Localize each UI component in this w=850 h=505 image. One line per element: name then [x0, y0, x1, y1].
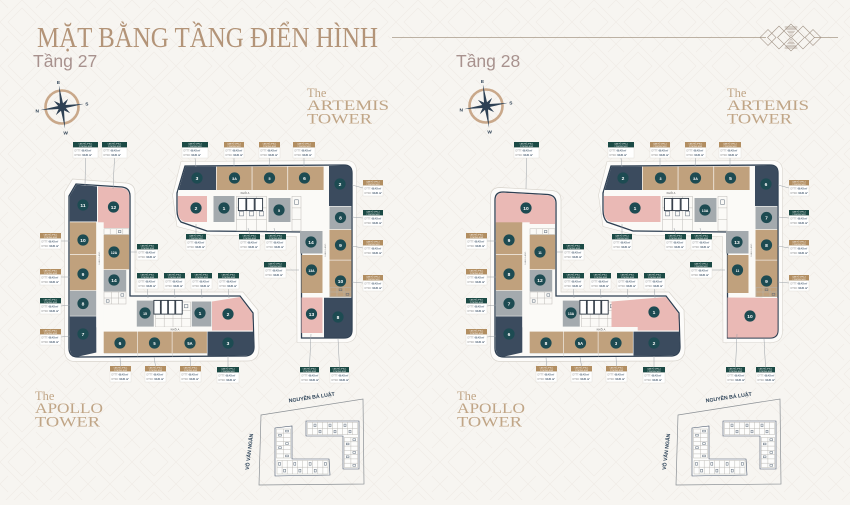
- svg-text:DTSD: 64.81 m²: DTSD: 64.81 m²: [302, 378, 320, 382]
- svg-text:DTSD: 64.81 m²: DTSD: 64.81 m²: [365, 286, 383, 290]
- svg-text:HÀNH LANG: HÀNH LANG: [324, 243, 327, 256]
- svg-text:DTTT: 69.43 m²: DTTT: 69.43 m²: [184, 149, 201, 153]
- svg-text:Tầng 28: Tầng 28: [456, 51, 520, 71]
- svg-text:DTTT: 69.43 m²: DTTT: 69.43 m²: [692, 269, 709, 273]
- svg-text:DTTT: 69.43 m²: DTTT: 69.43 m²: [267, 241, 284, 245]
- svg-text:14: 14: [308, 240, 314, 246]
- svg-text:DTSD: 64.81 m²: DTSD: 64.81 m²: [692, 273, 710, 277]
- svg-text:3: 3: [659, 177, 661, 181]
- svg-text:DTSD: 64.81 m²: DTSD: 64.81 m²: [139, 284, 157, 288]
- svg-text:DTTT: 69.43 m²: DTTT: 69.43 m²: [302, 374, 319, 378]
- svg-text:DTTT: 69.43 m²: DTTT: 69.43 m²: [365, 247, 382, 251]
- svg-text:DTSD: 64.81 m²: DTSD: 64.81 m²: [139, 255, 157, 259]
- svg-text:DTTT: 69.43 m²: DTTT: 69.43 m²: [104, 149, 121, 153]
- svg-text:DTSD: 64.81 m²: DTSD: 64.81 m²: [573, 377, 591, 381]
- svg-text:DTTT: 69.43 m²: DTTT: 69.43 m²: [592, 280, 609, 284]
- svg-text:DTSD: 64.81 m²: DTSD: 64.81 m²: [365, 251, 383, 255]
- svg-text:DTTT: 69.43 m²: DTTT: 69.43 m²: [219, 374, 236, 378]
- svg-text:11: 11: [538, 251, 542, 255]
- svg-text:DTSD: 64.81 m²: DTSD: 64.81 m²: [614, 245, 632, 249]
- svg-text:DTTT: 69.43 m²: DTTT: 69.43 m²: [166, 280, 183, 284]
- svg-text:DTSD: 64.81 m²: DTSD: 64.81 m²: [538, 377, 556, 381]
- svg-text:10: 10: [523, 206, 529, 212]
- svg-text:6: 6: [508, 332, 511, 338]
- svg-text:DTSD: 64.81 m²: DTSD: 64.81 m²: [261, 153, 279, 157]
- svg-text:5A: 5A: [578, 341, 583, 346]
- svg-text:DTSD: 64.81 m²: DTSD: 64.81 m²: [226, 153, 244, 157]
- svg-text:DTTT: 69.43 m²: DTTT: 69.43 m²: [332, 374, 349, 378]
- svg-text:DTTT: 69.43 m²: DTTT: 69.43 m²: [538, 373, 555, 377]
- svg-text:13: 13: [309, 312, 315, 318]
- svg-text:DTTT: 69.43 m²: DTTT: 69.43 m²: [791, 217, 808, 221]
- svg-text:DTSD: 64.81 m²: DTSD: 64.81 m²: [42, 280, 60, 284]
- svg-text:DTTT: 69.43 m²: DTTT: 69.43 m²: [728, 374, 745, 378]
- svg-text:DTTT: 69.43 m²: DTTT: 69.43 m²: [42, 336, 59, 340]
- svg-text:9: 9: [508, 238, 511, 244]
- svg-text:DTTT: 69.43 m²: DTTT: 69.43 m²: [608, 373, 625, 377]
- svg-text:5: 5: [268, 177, 270, 181]
- svg-text:1: 1: [223, 206, 226, 212]
- svg-text:10: 10: [338, 279, 344, 285]
- svg-text:DTTT: 69.43 m²: DTTT: 69.43 m²: [619, 280, 636, 284]
- svg-text:DTSD: 64.81 m²: DTSD: 64.81 m²: [728, 378, 746, 382]
- svg-text:DTTT: 69.43 m²: DTTT: 69.43 m²: [646, 280, 663, 284]
- svg-text:DTSD: 64.81 m²: DTSD: 64.81 m²: [166, 284, 184, 288]
- svg-text:TOWER: TOWER: [35, 415, 100, 431]
- svg-text:DTSD: 64.81 m²: DTSD: 64.81 m²: [188, 245, 206, 249]
- svg-text:DTTT: 69.43 m²: DTTT: 69.43 m²: [791, 187, 808, 191]
- svg-text:13A: 13A: [702, 209, 709, 213]
- svg-text:DTSD: 64.81 m²: DTSD: 64.81 m²: [565, 255, 583, 259]
- svg-text:DTSD: 64.81 m²: DTSD: 64.81 m²: [646, 284, 664, 288]
- svg-text:3A: 3A: [232, 177, 237, 181]
- svg-text:DTSD: 64.81 m²: DTSD: 64.81 m²: [687, 153, 705, 157]
- svg-text:DTTT: 69.43 m²: DTTT: 69.43 m²: [75, 149, 92, 153]
- svg-text:DTTT: 69.43 m²: DTTT: 69.43 m²: [468, 240, 485, 244]
- svg-text:DTTT: 69.43 m²: DTTT: 69.43 m²: [182, 373, 199, 377]
- svg-text:DTSD: 64.81 m²: DTSD: 64.81 m²: [721, 153, 739, 157]
- svg-text:DTSD: 64.81 m²: DTSD: 64.81 m²: [184, 153, 202, 157]
- svg-text:DTTT: 69.43 m²: DTTT: 69.43 m²: [468, 336, 485, 340]
- svg-text:DTTT: 69.43 m²: DTTT: 69.43 m²: [193, 280, 210, 284]
- svg-text:Tầng 27: Tầng 27: [33, 51, 97, 71]
- svg-text:DTSD: 64.81 m²: DTSD: 64.81 m²: [592, 284, 610, 288]
- svg-text:1: 1: [199, 311, 202, 317]
- svg-text:2: 2: [653, 341, 656, 347]
- svg-text:8: 8: [765, 243, 768, 249]
- svg-text:DTSD: 64.81 m²: DTSD: 64.81 m²: [295, 153, 313, 157]
- svg-text:6: 6: [119, 341, 122, 347]
- svg-text:DTSD: 64.81 m²: DTSD: 64.81 m²: [791, 286, 809, 290]
- svg-text:DTSD: 64.81 m²: DTSD: 64.81 m²: [468, 340, 486, 344]
- svg-text:DTTT: 69.43 m²: DTTT: 69.43 m²: [565, 251, 582, 255]
- svg-text:7: 7: [82, 332, 85, 338]
- svg-text:DTSD: 64.81 m²: DTSD: 64.81 m²: [791, 191, 809, 195]
- svg-text:DTSD: 64.81 m²: DTSD: 64.81 m²: [565, 284, 583, 288]
- svg-text:DTTT: 69.43 m²: DTTT: 69.43 m²: [365, 217, 382, 221]
- svg-text:5: 5: [278, 209, 280, 213]
- svg-text:DTTT: 69.43 m²: DTTT: 69.43 m²: [758, 374, 775, 378]
- svg-text:DTSD: 64.81 m²: DTSD: 64.81 m²: [220, 284, 238, 288]
- svg-text:DTTT: 69.43 m²: DTTT: 69.43 m²: [139, 280, 156, 284]
- svg-text:10: 10: [80, 238, 86, 244]
- svg-text:N: N: [35, 108, 39, 114]
- svg-text:W: W: [487, 130, 492, 136]
- svg-text:1: 1: [634, 206, 637, 212]
- svg-text:6: 6: [765, 182, 768, 188]
- svg-text:DTSD: 64.81 m²: DTSD: 64.81 m²: [219, 378, 237, 382]
- svg-text:2: 2: [227, 312, 230, 318]
- svg-text:11: 11: [80, 203, 85, 209]
- svg-text:DTSD: 64.81 m²: DTSD: 64.81 m²: [758, 378, 776, 382]
- svg-text:W: W: [63, 131, 68, 137]
- svg-text:3A: 3A: [693, 177, 698, 181]
- svg-text:DTSD: 64.81 m²: DTSD: 64.81 m²: [619, 284, 637, 288]
- svg-text:DTTT: 69.43 m²: DTTT: 69.43 m²: [295, 149, 312, 153]
- svg-text:7: 7: [508, 301, 511, 307]
- svg-text:DTTT: 69.43 m²: DTTT: 69.43 m²: [687, 149, 704, 153]
- svg-text:2: 2: [195, 206, 198, 212]
- svg-text:DTTT: 69.43 m²: DTTT: 69.43 m²: [468, 305, 485, 309]
- svg-text:DTTT: 69.43 m²: DTTT: 69.43 m²: [573, 373, 590, 377]
- svg-text:DTSD: 64.81 m²: DTSD: 64.81 m²: [332, 378, 350, 382]
- svg-text:DTTT: 69.43 m²: DTTT: 69.43 m²: [220, 280, 237, 284]
- svg-text:11: 11: [736, 269, 740, 273]
- svg-text:DTSD: 64.81 m²: DTSD: 64.81 m²: [147, 377, 165, 381]
- svg-text:DTTT: 69.43 m²: DTTT: 69.43 m²: [468, 276, 485, 280]
- svg-text:DTSD: 64.81 m²: DTSD: 64.81 m²: [266, 273, 284, 277]
- svg-text:13A: 13A: [568, 312, 575, 316]
- svg-text:DTTT: 69.43 m²: DTTT: 69.43 m²: [42, 305, 59, 309]
- svg-text:2: 2: [622, 176, 625, 182]
- svg-text:1: 1: [653, 310, 656, 316]
- svg-text:DTTT: 69.43 m²: DTTT: 69.43 m²: [667, 241, 684, 245]
- svg-text:5: 5: [729, 176, 732, 182]
- svg-text:DTSD: 64.81 m²: DTSD: 64.81 m²: [42, 340, 60, 344]
- svg-text:12A: 12A: [111, 251, 118, 255]
- svg-text:DTTT: 69.43 m²: DTTT: 69.43 m²: [112, 373, 129, 377]
- svg-text:DTTT: 69.43 m²: DTTT: 69.43 m²: [188, 241, 205, 245]
- svg-text:N: N: [459, 107, 463, 113]
- svg-text:DTTT: 69.43 m²: DTTT: 69.43 m²: [226, 149, 243, 153]
- svg-text:DTSD: 64.81 m²: DTSD: 64.81 m²: [42, 244, 60, 248]
- svg-text:DTTT: 69.43 m²: DTTT: 69.43 m²: [516, 149, 533, 153]
- svg-text:13: 13: [734, 240, 740, 246]
- svg-text:DTSD: 64.81 m²: DTSD: 64.81 m²: [468, 280, 486, 284]
- svg-text:5A: 5A: [187, 341, 192, 346]
- svg-text:DTTT: 69.43 m²: DTTT: 69.43 m²: [241, 241, 258, 245]
- svg-text:DTTT: 69.43 m²: DTTT: 69.43 m²: [266, 269, 283, 273]
- svg-text:DTSD: 64.81 m²: DTSD: 64.81 m²: [791, 251, 809, 255]
- svg-text:DTTT: 69.43 m²: DTTT: 69.43 m²: [721, 149, 738, 153]
- svg-text:DTSD: 64.81 m²: DTSD: 64.81 m²: [182, 377, 200, 381]
- svg-text:DTSD: 64.81 m²: DTSD: 64.81 m²: [645, 378, 663, 382]
- svg-text:TOWER: TOWER: [727, 112, 792, 128]
- svg-text:7: 7: [765, 215, 768, 221]
- svg-text:DTSD: 64.81 m²: DTSD: 64.81 m²: [112, 377, 130, 381]
- svg-text:8: 8: [508, 272, 511, 278]
- svg-text:8: 8: [545, 341, 548, 347]
- svg-text:14: 14: [111, 278, 117, 284]
- svg-text:DTSD: 64.81 m²: DTSD: 64.81 m²: [75, 153, 93, 157]
- svg-text:HÀNH LANG: HÀNH LANG: [98, 251, 101, 264]
- svg-text:DTTT: 69.43 m²: DTTT: 69.43 m²: [693, 241, 710, 245]
- svg-text:HÀNH LANG: HÀNH LANG: [750, 243, 753, 256]
- svg-text:DTTT: 69.43 m²: DTTT: 69.43 m²: [42, 240, 59, 244]
- svg-text:DTSD: 64.81 m²: DTSD: 64.81 m²: [104, 153, 122, 157]
- svg-text:12: 12: [111, 205, 117, 211]
- svg-text:9: 9: [765, 279, 768, 285]
- svg-text:8: 8: [337, 315, 340, 321]
- svg-text:DTSD: 64.81 m²: DTSD: 64.81 m²: [365, 221, 383, 225]
- svg-text:DTSD: 64.81 m²: DTSD: 64.81 m²: [42, 309, 60, 313]
- svg-text:13A: 13A: [308, 269, 315, 273]
- svg-text:DTTT: 69.43 m²: DTTT: 69.43 m²: [645, 374, 662, 378]
- svg-text:DTSD: 64.81 m²: DTSD: 64.81 m²: [516, 153, 534, 157]
- svg-text:2: 2: [339, 182, 342, 188]
- svg-text:DTSD: 64.81 m²: DTSD: 64.81 m²: [267, 245, 285, 249]
- svg-text:DTSD: 64.81 m²: DTSD: 64.81 m²: [667, 245, 685, 249]
- svg-text:8: 8: [82, 301, 85, 307]
- svg-text:DTSD: 64.81 m²: DTSD: 64.81 m²: [791, 221, 809, 225]
- svg-text:12: 12: [537, 278, 543, 284]
- svg-text:TOWER: TOWER: [457, 415, 522, 431]
- svg-text:DTSD: 64.81 m²: DTSD: 64.81 m²: [468, 309, 486, 313]
- svg-text:DTSD: 64.81 m²: DTSD: 64.81 m²: [608, 377, 626, 381]
- svg-text:DTTT: 69.43 m²: DTTT: 69.43 m²: [261, 149, 278, 153]
- svg-text:DTTT: 69.43 m²: DTTT: 69.43 m²: [139, 251, 156, 255]
- svg-text:10: 10: [747, 314, 753, 320]
- svg-text:DTTT: 69.43 m²: DTTT: 69.43 m²: [147, 373, 164, 377]
- svg-text:3: 3: [227, 341, 230, 347]
- svg-text:9: 9: [82, 272, 85, 278]
- svg-text:MẶT BẰNG TẦNG ĐIỂN HÌNH: MẶT BẰNG TẦNG ĐIỂN HÌNH: [37, 22, 378, 54]
- svg-text:DTTT: 69.43 m²: DTTT: 69.43 m²: [791, 282, 808, 286]
- svg-text:DTSD: 64.81 m²: DTSD: 64.81 m²: [468, 244, 486, 248]
- svg-text:DTSD: 64.81 m²: DTSD: 64.81 m²: [193, 284, 211, 288]
- svg-text:DTSD: 64.81 m²: DTSD: 64.81 m²: [241, 245, 259, 249]
- svg-text:DTSD: 64.81 m²: DTSD: 64.81 m²: [652, 153, 670, 157]
- svg-text:15: 15: [143, 312, 147, 316]
- svg-text:DTSD: 64.81 m²: DTSD: 64.81 m²: [365, 191, 383, 195]
- svg-text:DTTT: 69.43 m²: DTTT: 69.43 m²: [791, 247, 808, 251]
- svg-text:DTSD: 64.81 m²: DTSD: 64.81 m²: [693, 245, 711, 249]
- svg-text:DTTT: 69.43 m²: DTTT: 69.43 m²: [365, 282, 382, 286]
- svg-text:DTTT: 69.43 m²: DTTT: 69.43 m²: [610, 149, 627, 153]
- svg-text:8: 8: [339, 215, 342, 221]
- svg-text:DTTT: 69.43 m²: DTTT: 69.43 m²: [42, 276, 59, 280]
- svg-text:DTTT: 69.43 m²: DTTT: 69.43 m²: [365, 187, 382, 191]
- svg-text:HÀNH LANG: HÀNH LANG: [524, 251, 527, 264]
- svg-text:6: 6: [303, 176, 306, 182]
- svg-text:9: 9: [339, 243, 342, 249]
- svg-text:DTTT: 69.43 m²: DTTT: 69.43 m²: [614, 241, 631, 245]
- svg-text:3: 3: [196, 176, 199, 182]
- svg-text:DTTT: 69.43 m²: DTTT: 69.43 m²: [652, 149, 669, 153]
- svg-text:TOWER: TOWER: [307, 112, 372, 128]
- svg-text:DTSD: 64.81 m²: DTSD: 64.81 m²: [610, 153, 628, 157]
- svg-text:DTTT: 69.43 m²: DTTT: 69.43 m²: [565, 280, 582, 284]
